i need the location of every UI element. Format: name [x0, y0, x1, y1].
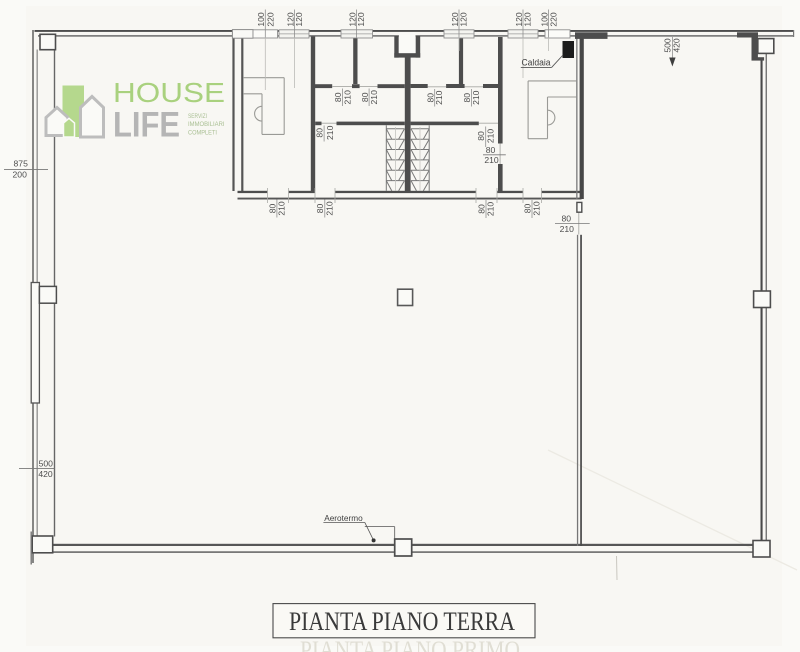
svg-text:210: 210 [434, 90, 444, 105]
svg-text:210: 210 [560, 224, 575, 234]
svg-text:120: 120 [294, 12, 304, 27]
svg-text:80: 80 [314, 128, 324, 138]
svg-text:200: 200 [13, 169, 28, 179]
svg-text:875: 875 [14, 159, 29, 169]
svg-text:210: 210 [342, 90, 352, 105]
svg-text:80: 80 [562, 214, 572, 224]
svg-text:SERVIZI: SERVIZI [188, 113, 207, 120]
svg-text:120: 120 [523, 12, 533, 27]
svg-text:210: 210 [369, 90, 379, 105]
svg-text:HOUSE: HOUSE [113, 77, 225, 108]
svg-text:LIFE: LIFE [113, 106, 180, 145]
svg-text:420: 420 [38, 469, 53, 479]
svg-text:PIANTA PIANO TERRA: PIANTA PIANO TERRA [289, 606, 515, 636]
svg-text:500: 500 [39, 458, 54, 468]
svg-text:IMMOBILIARI: IMMOBILIARI [188, 121, 225, 128]
svg-text:COMPLETI: COMPLETI [188, 130, 217, 137]
svg-text:PIANTA PIANO PRIMO: PIANTA PIANO PRIMO [300, 637, 520, 652]
svg-text:120: 120 [459, 12, 469, 27]
svg-text:420: 420 [671, 38, 681, 53]
svg-text:210: 210 [484, 155, 499, 165]
svg-text:Aerotermo: Aerotermo [324, 513, 363, 523]
svg-text:220: 220 [549, 12, 559, 27]
svg-text:80: 80 [486, 145, 496, 155]
svg-text:220: 220 [265, 12, 275, 27]
svg-text:Caldaia: Caldaia [522, 58, 551, 68]
svg-text:210: 210 [325, 201, 335, 216]
svg-text:210: 210 [485, 129, 495, 144]
svg-text:210: 210 [532, 201, 542, 216]
svg-text:210: 210 [471, 90, 481, 105]
svg-text:120: 120 [356, 12, 366, 27]
svg-text:210: 210 [325, 125, 335, 140]
svg-text:210: 210 [486, 202, 496, 217]
svg-text:210: 210 [277, 201, 287, 216]
